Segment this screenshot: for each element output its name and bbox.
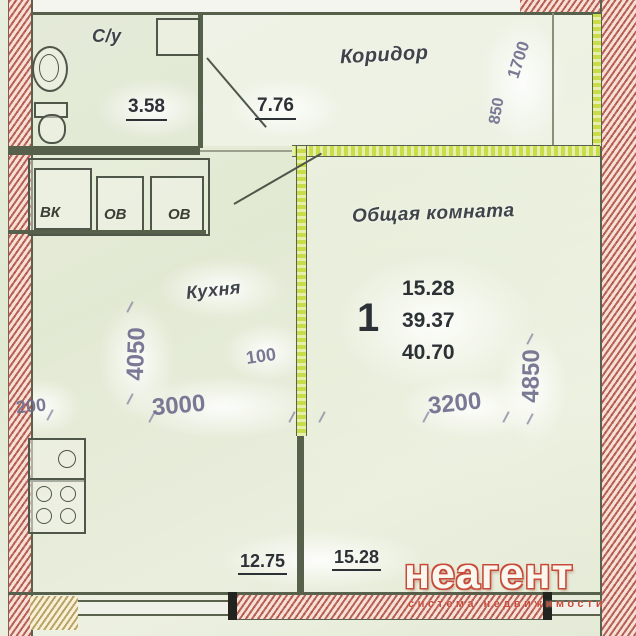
- light-patch: [478, 15, 568, 150]
- left-outer-wall: [8, 0, 33, 636]
- shaft-box-ov-1: ОВ: [96, 176, 144, 232]
- area-corridor: 7.76: [255, 95, 296, 120]
- room-label-bathroom: С/у: [92, 26, 122, 47]
- bathroom-cabinet-icon: [156, 18, 200, 56]
- bottom-dim-right: 15.28: [332, 547, 381, 571]
- right-wall-highlight: [592, 14, 602, 146]
- burner: [36, 486, 52, 502]
- stove-icon: [28, 478, 86, 534]
- watermark-tagline: система недвижимости: [408, 598, 606, 610]
- main-horizontal-wall-highlight: [292, 145, 600, 157]
- shaft-bottom-wall: [8, 230, 206, 234]
- dim-4850: 4850: [517, 349, 546, 403]
- dim-4050: 4050: [122, 327, 152, 381]
- burner: [36, 508, 52, 524]
- toilet-icon: [38, 114, 66, 144]
- washbasin-inner: [39, 54, 59, 82]
- summary-living-area: 15.28: [402, 274, 455, 304]
- washbasin-icon: [32, 46, 68, 92]
- shaft-box-vk: ВК: [34, 168, 92, 230]
- wall-cap: [228, 592, 237, 620]
- burner: [60, 508, 76, 524]
- shaft-label: ВК: [40, 204, 60, 221]
- bottom-dim-left: 12.75: [238, 551, 287, 575]
- center-wall-highlight: [296, 146, 307, 436]
- right-outer-wall: [600, 0, 636, 636]
- shaft-box-ov-2: ОВ: [150, 176, 204, 232]
- closet-divider-line: [552, 13, 554, 148]
- floor-plan: ВК ОВ ОВ С/у Коридор Общая комната Кухня…: [0, 0, 636, 636]
- bottom-wall-yellow-section: [30, 596, 78, 630]
- summary-rooms-count: 1: [357, 298, 379, 338]
- center-wall-lower: [297, 436, 304, 596]
- area-bathroom: 3.58: [126, 96, 167, 121]
- dim-100: 100: [245, 344, 278, 369]
- burner: [60, 486, 76, 502]
- room-label-corridor: Коридор: [339, 42, 429, 70]
- watermark-logo: неагент: [404, 550, 574, 599]
- top-wall-line: [22, 12, 602, 15]
- main-horizontal-wall-left: [8, 146, 200, 155]
- dim-3000: 3000: [151, 390, 207, 423]
- kitchen-door-opening: [200, 150, 292, 152]
- dim-200: 200: [15, 394, 47, 418]
- sink-bowl: [58, 450, 76, 468]
- dim-3200: 3200: [427, 387, 483, 420]
- window-left: [78, 600, 230, 616]
- summary-aux-area: 39.37: [402, 306, 455, 336]
- kitchen-sink-icon: [28, 438, 86, 482]
- summary-total-area: 40.70: [402, 338, 455, 368]
- shaft-label: ОВ: [104, 206, 127, 223]
- shaft-label: ОВ: [168, 206, 191, 223]
